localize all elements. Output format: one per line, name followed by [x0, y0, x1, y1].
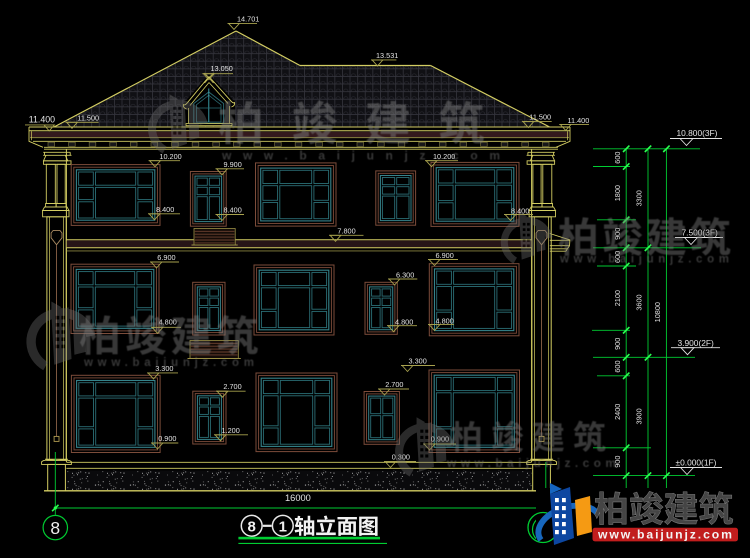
svg-text:10.200: 10.200 [159, 152, 181, 161]
svg-text:2.700: 2.700 [385, 380, 403, 389]
svg-text:600: 600 [613, 152, 622, 164]
svg-text:10800: 10800 [653, 302, 662, 322]
svg-text:3300: 3300 [635, 190, 644, 206]
svg-text:900: 900 [613, 338, 622, 350]
svg-text:14.701: 14.701 [237, 15, 259, 24]
svg-text:600: 600 [613, 360, 622, 372]
svg-text:4.800: 4.800 [395, 317, 413, 326]
svg-text:3.900(2F): 3.900(2F) [678, 338, 715, 348]
svg-text:6.900: 6.900 [436, 251, 454, 260]
svg-text:2100: 2100 [613, 290, 622, 306]
svg-text:0.900: 0.900 [158, 434, 176, 443]
svg-text:6.900: 6.900 [157, 253, 175, 262]
svg-text:3.300: 3.300 [409, 357, 427, 366]
svg-text:16000: 16000 [285, 493, 311, 503]
svg-text:3900: 3900 [635, 408, 644, 424]
svg-text:11.400: 11.400 [568, 116, 590, 125]
svg-text:10.800(3F): 10.800(3F) [677, 128, 718, 138]
svg-text:2400: 2400 [613, 404, 622, 420]
svg-text:2.700: 2.700 [223, 382, 241, 391]
svg-text:11.500: 11.500 [77, 114, 99, 123]
svg-text:11.500: 11.500 [529, 113, 551, 122]
svg-text:6.300: 6.300 [396, 271, 414, 280]
svg-text:1: 1 [279, 518, 287, 535]
svg-text:8: 8 [248, 518, 256, 535]
svg-text:8: 8 [50, 518, 60, 538]
svg-text:8.400: 8.400 [156, 205, 174, 214]
svg-text:8.400: 8.400 [224, 206, 242, 215]
svg-text:1800: 1800 [613, 185, 622, 201]
svg-text:7.800: 7.800 [337, 226, 355, 235]
svg-text:3600: 3600 [635, 294, 644, 310]
svg-text:±0.000(1F): ±0.000(1F) [676, 458, 717, 468]
svg-text:1.200: 1.200 [222, 426, 240, 435]
svg-text:13.050: 13.050 [211, 64, 233, 73]
svg-text:4.800: 4.800 [436, 316, 454, 325]
svg-text:11.400: 11.400 [29, 115, 55, 125]
svg-text:13.531: 13.531 [376, 51, 398, 60]
